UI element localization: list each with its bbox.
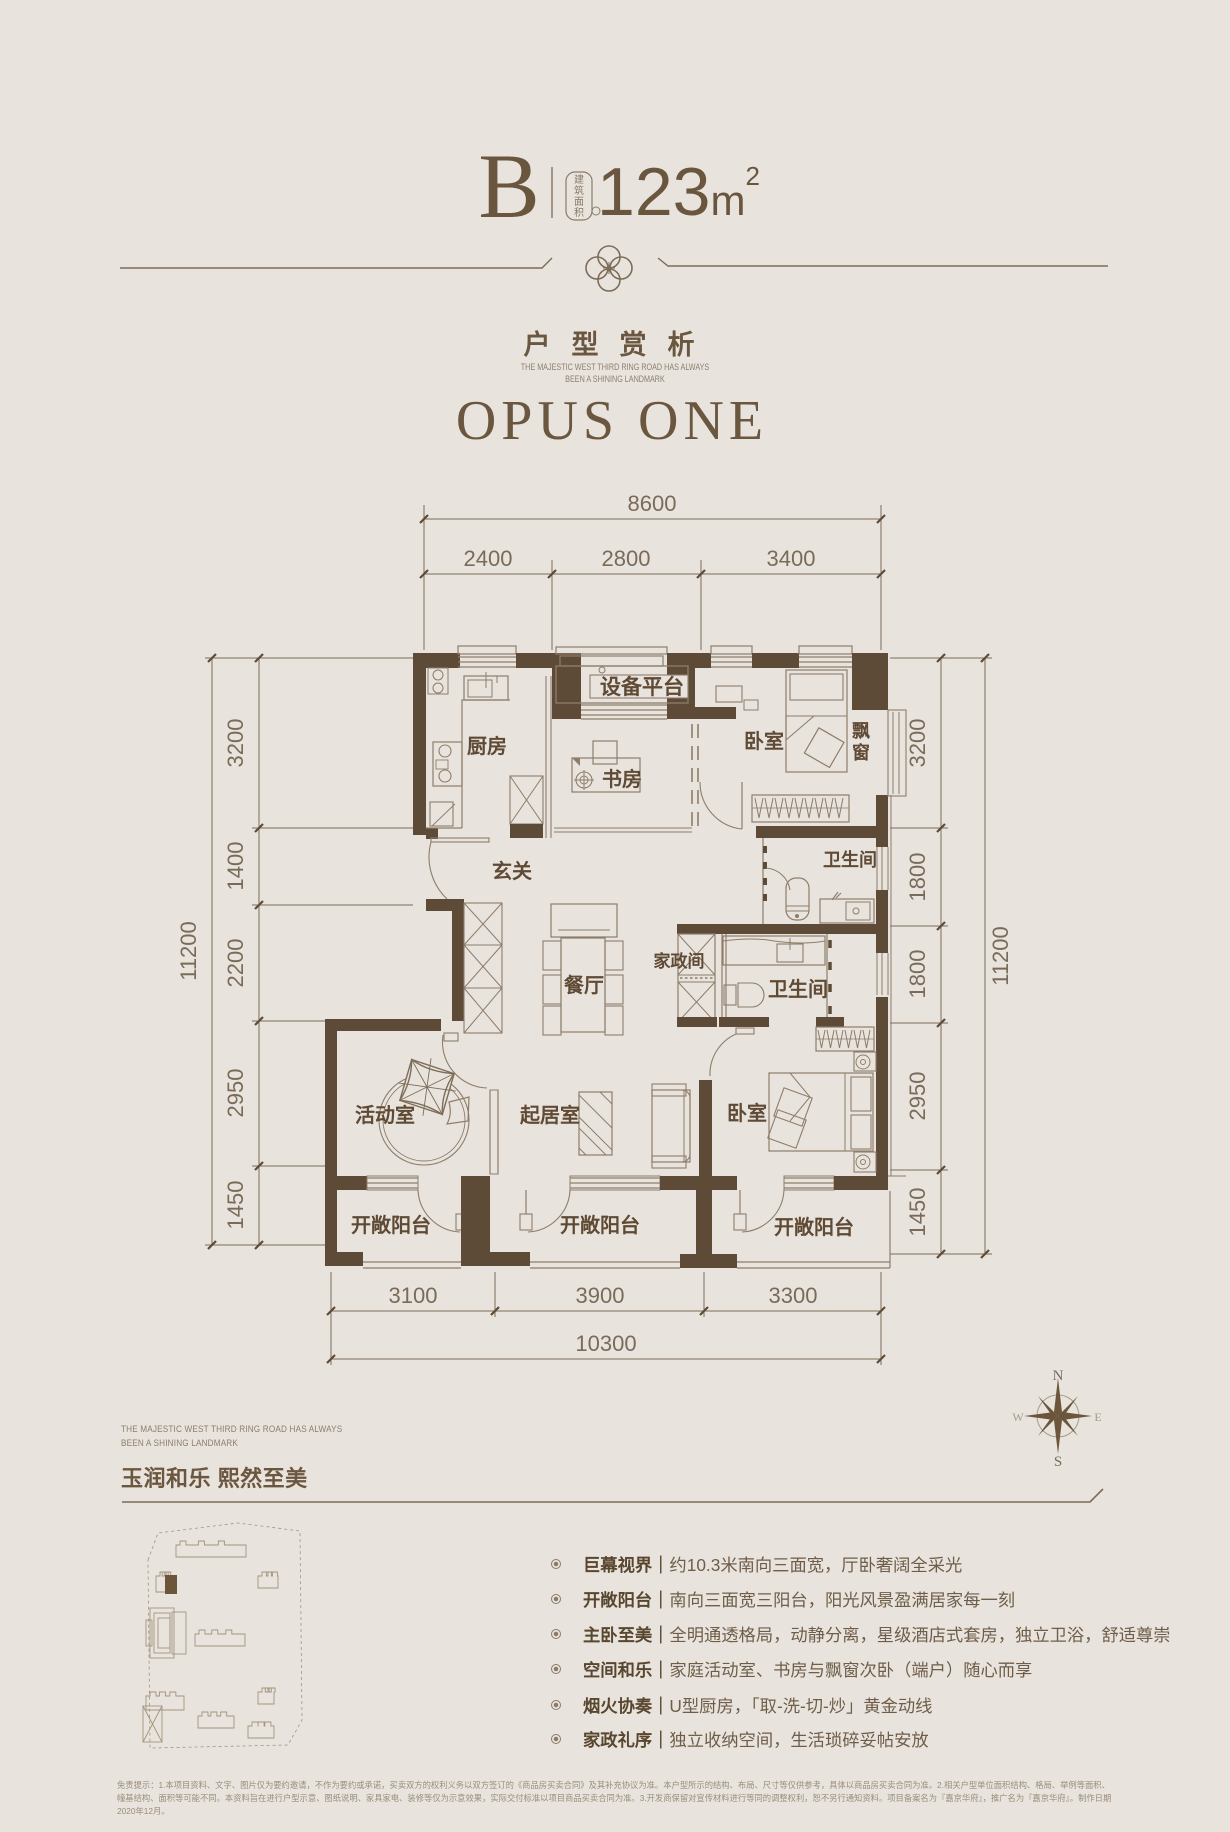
svg-text:餐厅: 餐厅: [564, 973, 604, 997]
svg-text:2200: 2200: [223, 939, 248, 988]
svg-text:3200: 3200: [905, 719, 930, 768]
svg-text:卧室: 卧室: [727, 1101, 767, 1125]
svg-text:2400: 2400: [464, 546, 513, 571]
svg-text:2800: 2800: [602, 546, 651, 571]
svg-text:3300: 3300: [769, 1283, 818, 1308]
svg-text:活动室: 活动室: [355, 1103, 415, 1127]
svg-text:1400: 1400: [223, 842, 248, 891]
svg-text:开敞阳台: 开敞阳台: [774, 1215, 854, 1239]
svg-text:面: 面: [574, 197, 584, 208]
svg-text:1450: 1450: [905, 1188, 930, 1237]
svg-text:10300: 10300: [575, 1331, 636, 1356]
svg-text:1800: 1800: [905, 853, 930, 902]
svg-text:卫生间: 卫生间: [823, 849, 877, 870]
svg-text:玄关: 玄关: [492, 859, 532, 883]
svg-text:卫生间: 卫生间: [768, 978, 828, 1001]
svg-text:11200: 11200: [988, 926, 1013, 986]
svg-text:筑: 筑: [574, 184, 584, 197]
svg-text:3400: 3400: [767, 546, 816, 571]
svg-text:开敞阳台: 开敞阳台: [560, 1213, 640, 1237]
svg-text:1450: 1450: [223, 1181, 248, 1230]
svg-text:3900: 3900: [576, 1283, 625, 1308]
svg-text:起居室: 起居室: [519, 1103, 580, 1127]
svg-text:N: N: [1053, 1368, 1064, 1384]
svg-text:积: 积: [574, 207, 584, 219]
svg-text:8600: 8600: [628, 491, 677, 516]
svg-text:书房: 书房: [602, 767, 642, 791]
svg-text:建: 建: [574, 173, 584, 186]
svg-text:家政间: 家政间: [654, 951, 705, 971]
svg-text:窗: 窗: [852, 742, 870, 763]
svg-text:飘: 飘: [852, 721, 870, 741]
svg-text:厨房: 厨房: [467, 734, 507, 758]
svg-text:开敞阳台: 开敞阳台: [351, 1213, 431, 1237]
svg-text:卧室: 卧室: [744, 729, 784, 753]
svg-text:1800: 1800: [905, 950, 930, 999]
svg-text:W: W: [1012, 1410, 1024, 1424]
svg-text:3200: 3200: [223, 719, 248, 768]
svg-text:2950: 2950: [223, 1069, 248, 1118]
svg-text:设备平台: 设备平台: [600, 675, 684, 699]
svg-text:2950: 2950: [905, 1072, 930, 1121]
svg-text:3100: 3100: [389, 1283, 438, 1308]
svg-text:11200: 11200: [176, 921, 201, 981]
svg-text:S: S: [1054, 1454, 1062, 1470]
svg-text:E: E: [1094, 1410, 1101, 1424]
